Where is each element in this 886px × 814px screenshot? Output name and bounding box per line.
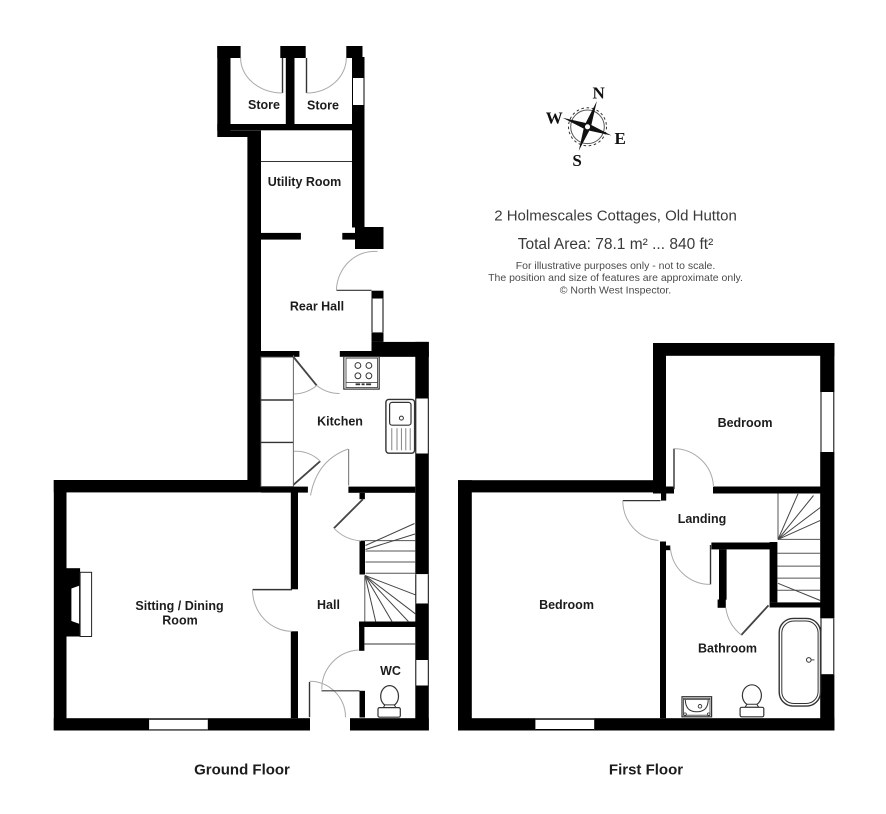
svg-text:Kitchen: Kitchen bbox=[317, 415, 363, 429]
svg-text:Rear Hall: Rear Hall bbox=[290, 300, 344, 314]
svg-text:Hall: Hall bbox=[317, 598, 340, 612]
svg-text:First Floor: First Floor bbox=[609, 762, 683, 779]
svg-text:Bedroom: Bedroom bbox=[718, 416, 773, 430]
svg-text:© North West Inspector.: © North West Inspector. bbox=[560, 284, 671, 296]
svg-text:The position and size of featu: The position and size of features are ap… bbox=[488, 272, 743, 284]
svg-text:WC: WC bbox=[380, 664, 401, 678]
svg-text:N: N bbox=[592, 84, 605, 103]
svg-text:S: S bbox=[572, 151, 581, 170]
svg-text:For illustrative purposes only: For illustrative purposes only - not to … bbox=[516, 260, 716, 272]
svg-text:Ground Floor: Ground Floor bbox=[194, 762, 290, 779]
svg-text:Utility Room: Utility Room bbox=[268, 175, 342, 189]
svg-text:W: W bbox=[546, 109, 563, 128]
svg-text:Sitting / Dining: Sitting / Dining bbox=[135, 599, 223, 613]
svg-text:2 Holmescales Cottages, Old Hu: 2 Holmescales Cottages, Old Hutton bbox=[494, 208, 737, 225]
svg-text:Total Area: 78.1 m² ... 840 ft: Total Area: 78.1 m² ... 840 ft² bbox=[518, 236, 714, 253]
svg-text:Landing: Landing bbox=[678, 512, 727, 526]
svg-text:Bathroom: Bathroom bbox=[698, 642, 757, 656]
svg-text:Store: Store bbox=[248, 98, 280, 112]
svg-text:E: E bbox=[615, 129, 626, 148]
svg-text:Bedroom: Bedroom bbox=[539, 598, 594, 612]
svg-text:Store: Store bbox=[307, 99, 339, 113]
svg-text:Room: Room bbox=[162, 613, 197, 627]
